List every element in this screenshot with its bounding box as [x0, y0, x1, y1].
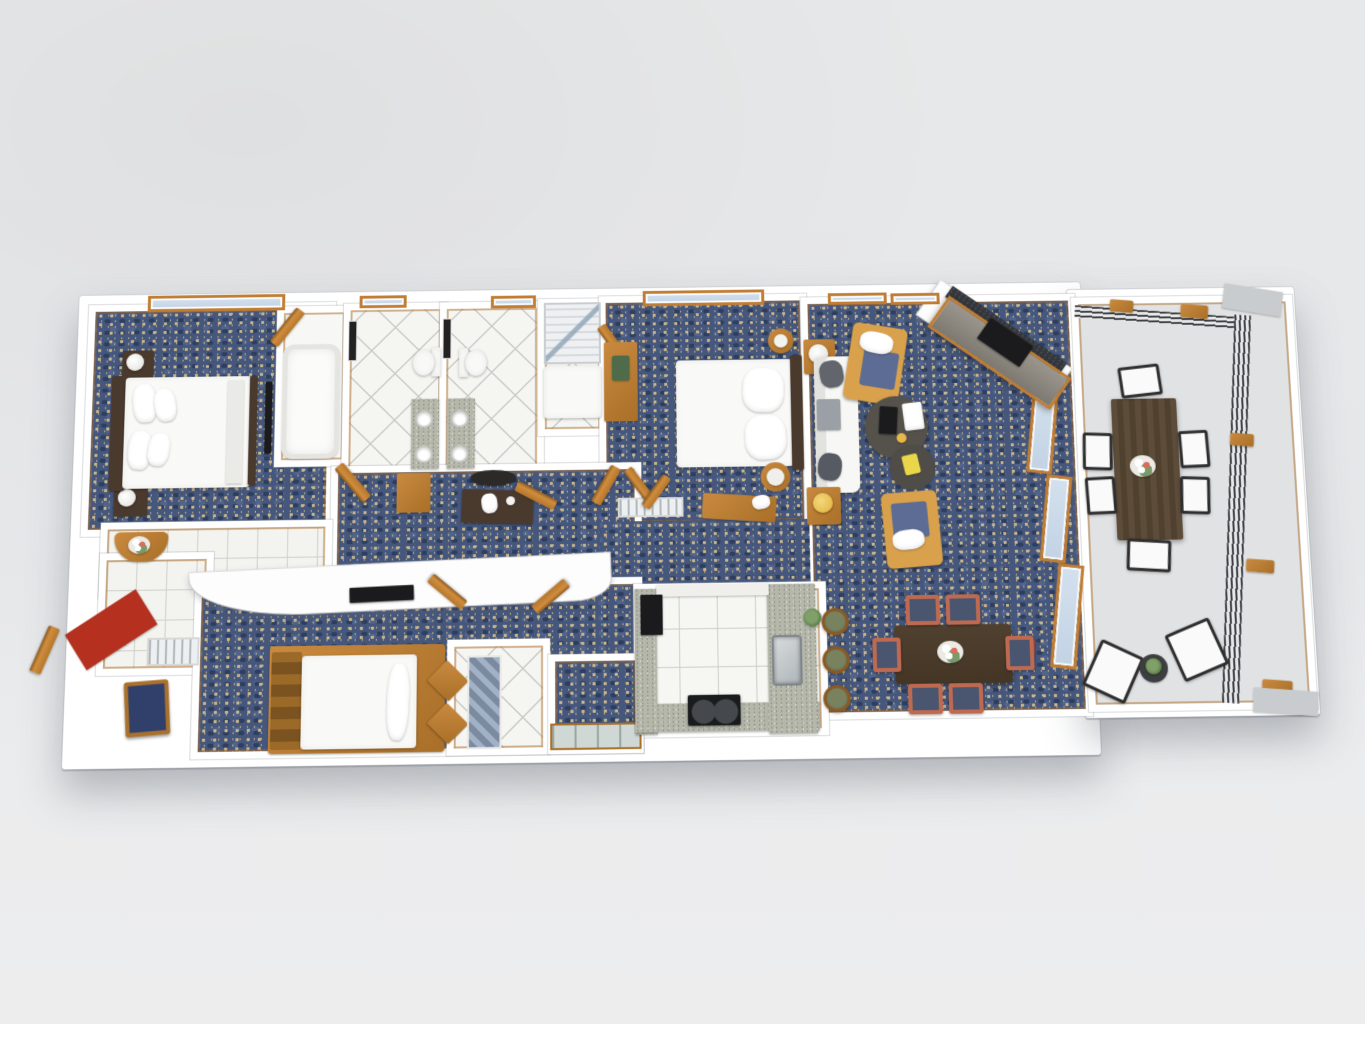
dining-chair-s2	[948, 683, 983, 714]
dining-chair-n1	[905, 595, 940, 626]
balcony-post-1	[1109, 299, 1133, 313]
bathroom-3-shower	[467, 655, 502, 749]
bedroom-2-dresser	[604, 342, 638, 422]
dining-chair-e	[1005, 636, 1035, 671]
master-duvet-fold	[226, 380, 244, 484]
bathtub	[281, 344, 340, 459]
bedroom-3-tv	[349, 585, 414, 603]
living-papers	[902, 402, 925, 431]
floor-plan-canvas	[0, 0, 1365, 1024]
bedroom-2-pillow-n	[742, 367, 784, 412]
closet-mirror-doors	[550, 722, 641, 750]
living-cup	[896, 433, 906, 443]
patio-chair-w1	[1083, 433, 1113, 471]
kitchen-stove	[688, 694, 741, 725]
bedroom-2-headboard	[790, 355, 804, 470]
bath-a-picture	[348, 321, 357, 361]
kitchen-fridge	[640, 595, 662, 635]
lounge-plant	[1145, 658, 1162, 674]
dining-chair-s1	[908, 683, 943, 714]
dining-chair-w	[872, 637, 901, 672]
entry-door	[29, 625, 60, 675]
hall-desk-cup	[506, 496, 515, 505]
floor-plan-3d-view	[0, 18, 1365, 1050]
window-living-a	[828, 293, 887, 305]
patio-chair-e1	[1178, 430, 1211, 469]
bedroom-2-hamper-top	[774, 334, 788, 348]
shower-enclosure	[544, 302, 601, 364]
kitchen-sink	[772, 635, 803, 686]
bedroom-2-tray	[612, 355, 630, 380]
window-bedroom-2	[643, 289, 765, 306]
bath-b-picture	[442, 318, 451, 358]
patio-chair-n	[1117, 363, 1163, 399]
shower-base	[544, 365, 601, 418]
balcony-parapet-se	[1253, 687, 1318, 716]
window-living-b	[890, 293, 939, 305]
patio-chair-e2	[1180, 476, 1211, 514]
window-bath-b	[491, 295, 536, 308]
living-armchair-n-cushion	[859, 348, 900, 390]
bedroom-3-bench	[124, 679, 171, 738]
dining-chair-n2	[945, 594, 980, 625]
balcony-post-4	[1246, 558, 1274, 573]
balcony-post-3	[1230, 433, 1254, 447]
patio-chair-w2	[1085, 476, 1118, 515]
window-master	[148, 294, 286, 312]
living-sofa-throw	[816, 399, 840, 430]
kitchen-cabinets	[656, 583, 768, 597]
living-laptop	[879, 406, 898, 434]
bedroom-2-pillow-s	[744, 414, 788, 461]
hall-cabinet	[396, 473, 430, 513]
window-bath-a	[360, 295, 407, 308]
bedroom-3-steps	[270, 652, 302, 750]
foyer-railing	[146, 637, 199, 666]
balcony-post-2	[1180, 304, 1208, 319]
patio-chair-s	[1127, 538, 1172, 572]
